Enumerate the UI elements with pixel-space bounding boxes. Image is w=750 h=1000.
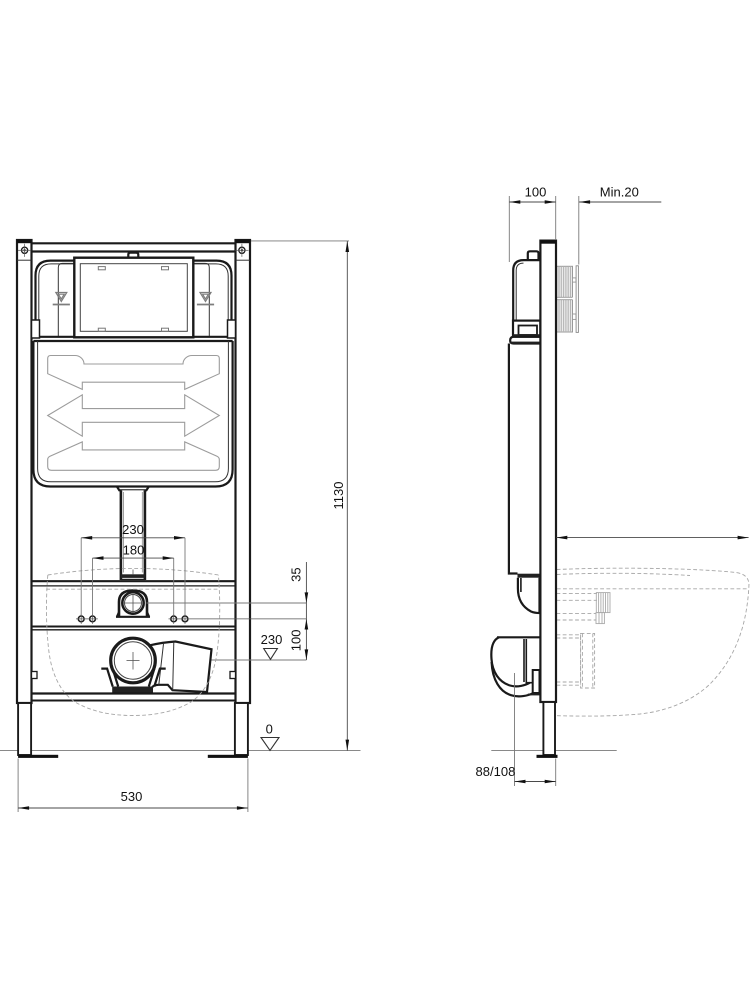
svg-text:1130: 1130 (331, 482, 346, 510)
svg-text:180: 180 (123, 542, 145, 557)
svg-text:100: 100 (525, 185, 547, 200)
svg-text:88/108: 88/108 (476, 764, 516, 779)
svg-text:Min.20: Min.20 (600, 185, 639, 200)
svg-text:230: 230 (261, 632, 283, 647)
svg-text:35: 35 (289, 567, 304, 581)
svg-text:230: 230 (122, 522, 144, 537)
svg-text:0: 0 (266, 721, 273, 736)
svg-text:100: 100 (289, 630, 304, 652)
svg-text:530: 530 (121, 789, 143, 804)
